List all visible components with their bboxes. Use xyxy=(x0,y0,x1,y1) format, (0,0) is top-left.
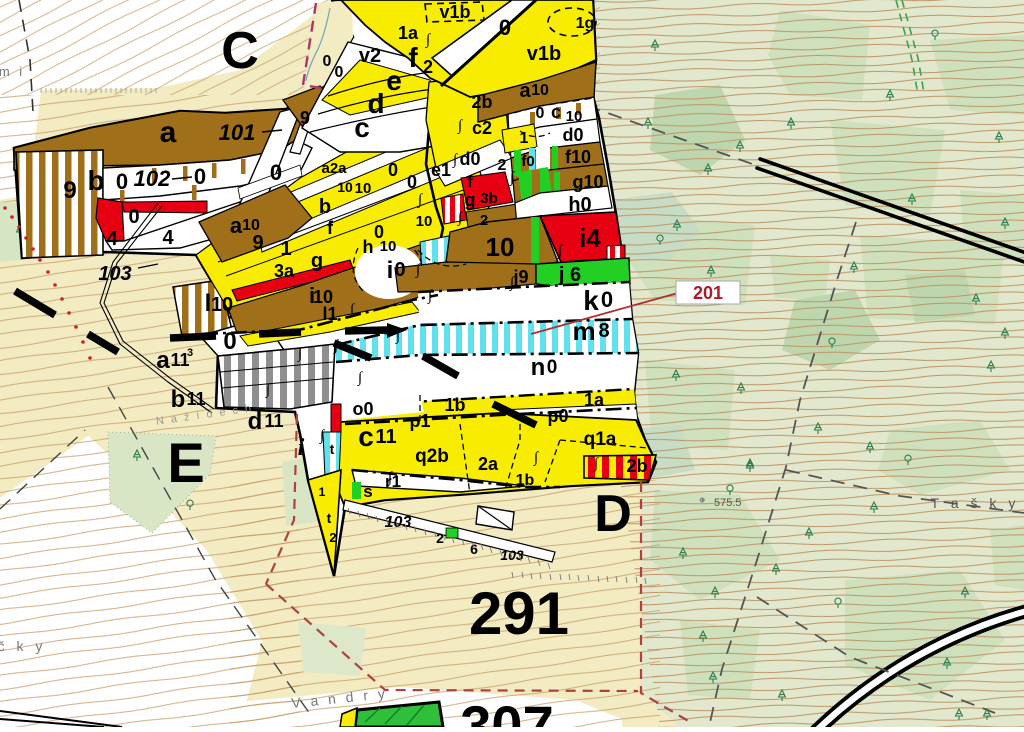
svg-text:b: b xyxy=(319,196,331,218)
svg-text:b: b xyxy=(87,165,104,196)
svg-text:4: 4 xyxy=(162,227,174,249)
svg-text:1: 1 xyxy=(319,485,326,499)
svg-text:m: m xyxy=(572,316,595,346)
svg-text:c: c xyxy=(358,421,374,452)
svg-text:1a: 1a xyxy=(584,390,605,410)
svg-text:E: E xyxy=(167,431,204,494)
svg-text:101: 101 xyxy=(219,120,256,145)
svg-text:d: d xyxy=(367,88,384,119)
svg-text:g10: g10 xyxy=(572,172,603,192)
svg-text:6: 6 xyxy=(470,541,478,557)
svg-text:10: 10 xyxy=(566,108,583,125)
svg-text:h0: h0 xyxy=(568,194,591,216)
svg-text:10: 10 xyxy=(531,82,549,99)
svg-text:8: 8 xyxy=(598,320,609,342)
svg-text:s: s xyxy=(363,482,372,501)
svg-text:c: c xyxy=(551,102,561,122)
svg-text:p0: p0 xyxy=(547,406,568,426)
svg-text:0: 0 xyxy=(388,160,398,180)
svg-text:h: h xyxy=(363,237,374,257)
svg-text:a: a xyxy=(230,213,243,238)
svg-text:291: 291 xyxy=(469,580,569,647)
svg-text:b: b xyxy=(171,386,186,413)
svg-text:2: 2 xyxy=(498,157,507,174)
svg-text:q1a: q1a xyxy=(584,429,617,450)
svg-text:0: 0 xyxy=(323,53,332,70)
svg-text:575.5: 575.5 xyxy=(714,497,742,509)
svg-text:i: i xyxy=(298,435,305,461)
svg-text:103: 103 xyxy=(385,514,412,531)
svg-text:C: C xyxy=(221,22,259,80)
svg-text:0: 0 xyxy=(270,160,282,185)
svg-text:0: 0 xyxy=(499,15,511,40)
svg-text:10: 10 xyxy=(355,180,372,197)
svg-text:d0: d0 xyxy=(562,125,583,145)
svg-text:2: 2 xyxy=(329,530,336,545)
svg-text:a2a: a2a xyxy=(321,160,347,177)
svg-text:j 6: j 6 xyxy=(558,264,581,286)
svg-text:p1: p1 xyxy=(409,411,430,431)
svg-text:e: e xyxy=(386,65,402,96)
svg-text:g: g xyxy=(465,190,476,210)
svg-text:i4: i4 xyxy=(579,223,601,253)
svg-text:0: 0 xyxy=(128,206,139,228)
svg-text:l1: l1 xyxy=(322,304,337,324)
svg-text:t: t xyxy=(330,441,335,457)
svg-text:1g: 1g xyxy=(576,15,595,32)
svg-text:j9: j9 xyxy=(512,267,528,287)
svg-text:d0: d0 xyxy=(459,149,480,169)
svg-text:m i: m i xyxy=(0,64,25,79)
svg-text:n: n xyxy=(531,354,546,381)
svg-text:1b: 1b xyxy=(516,472,535,489)
svg-text:k: k xyxy=(583,285,599,316)
svg-text:D: D xyxy=(594,485,632,543)
svg-text:T a š k y: T a š k y xyxy=(931,495,1020,511)
svg-text:0: 0 xyxy=(335,64,344,81)
svg-text:3: 3 xyxy=(187,347,193,359)
svg-text:2a: 2a xyxy=(478,454,499,474)
svg-text:307: 307 xyxy=(460,694,553,727)
svg-text:0: 0 xyxy=(601,287,613,312)
svg-text:0: 0 xyxy=(394,259,405,281)
svg-text:q2b: q2b xyxy=(415,446,449,467)
svg-text:f: f xyxy=(408,42,418,73)
svg-text:2: 2 xyxy=(436,530,444,546)
svg-text:0: 0 xyxy=(536,105,545,122)
svg-text:v1b: v1b xyxy=(527,43,561,65)
svg-text:201: 201 xyxy=(693,283,723,303)
svg-text:c2: c2 xyxy=(472,118,492,138)
svg-text:2: 2 xyxy=(480,212,488,229)
svg-text:c: c xyxy=(354,112,370,143)
svg-text:11: 11 xyxy=(264,411,283,431)
svg-text:103: 103 xyxy=(98,263,131,285)
svg-text:1b: 1b xyxy=(444,395,465,415)
svg-text:f10: f10 xyxy=(565,147,591,167)
svg-text:2: 2 xyxy=(423,57,433,77)
svg-text:9: 9 xyxy=(252,232,263,254)
svg-text:3b: 3b xyxy=(480,190,498,207)
svg-text:1: 1 xyxy=(520,130,529,147)
svg-text:0: 0 xyxy=(194,164,206,189)
svg-text:3a: 3a xyxy=(274,261,295,281)
svg-text:o0: o0 xyxy=(352,399,373,419)
svg-text:2b: 2b xyxy=(471,92,492,112)
svg-text:10: 10 xyxy=(380,238,397,255)
svg-text:10: 10 xyxy=(337,179,353,195)
svg-text:a: a xyxy=(160,116,177,149)
svg-text:102: 102 xyxy=(134,166,171,191)
svg-text:e1: e1 xyxy=(431,160,451,180)
svg-text:č k y: č k y xyxy=(0,638,46,654)
svg-text:10: 10 xyxy=(486,232,515,262)
svg-text:0: 0 xyxy=(407,172,417,192)
svg-text:0: 0 xyxy=(223,328,236,355)
svg-text:0: 0 xyxy=(547,357,558,378)
svg-text:2b: 2b xyxy=(626,456,647,476)
svg-text:1: 1 xyxy=(280,238,291,260)
svg-text:a: a xyxy=(156,347,170,374)
svg-text:f: f xyxy=(327,218,334,238)
svg-text:v2: v2 xyxy=(359,45,381,67)
svg-text:f: f xyxy=(467,174,473,191)
svg-text:103: 103 xyxy=(500,547,524,563)
svg-text:v1b: v1b xyxy=(439,2,470,22)
svg-text:i: i xyxy=(387,257,394,284)
svg-text:t: t xyxy=(327,510,332,526)
svg-text:9: 9 xyxy=(300,108,310,128)
svg-text:9: 9 xyxy=(63,177,76,204)
svg-text:11: 11 xyxy=(375,426,396,448)
svg-text:1a: 1a xyxy=(398,23,419,43)
svg-text:0: 0 xyxy=(116,169,128,194)
svg-text:a: a xyxy=(519,80,531,102)
svg-text:4: 4 xyxy=(106,228,118,250)
svg-text:g: g xyxy=(311,250,323,272)
svg-text:10: 10 xyxy=(211,294,233,316)
svg-text:f0: f0 xyxy=(521,153,534,170)
svg-text:10: 10 xyxy=(416,213,433,230)
svg-text:11: 11 xyxy=(186,389,205,409)
